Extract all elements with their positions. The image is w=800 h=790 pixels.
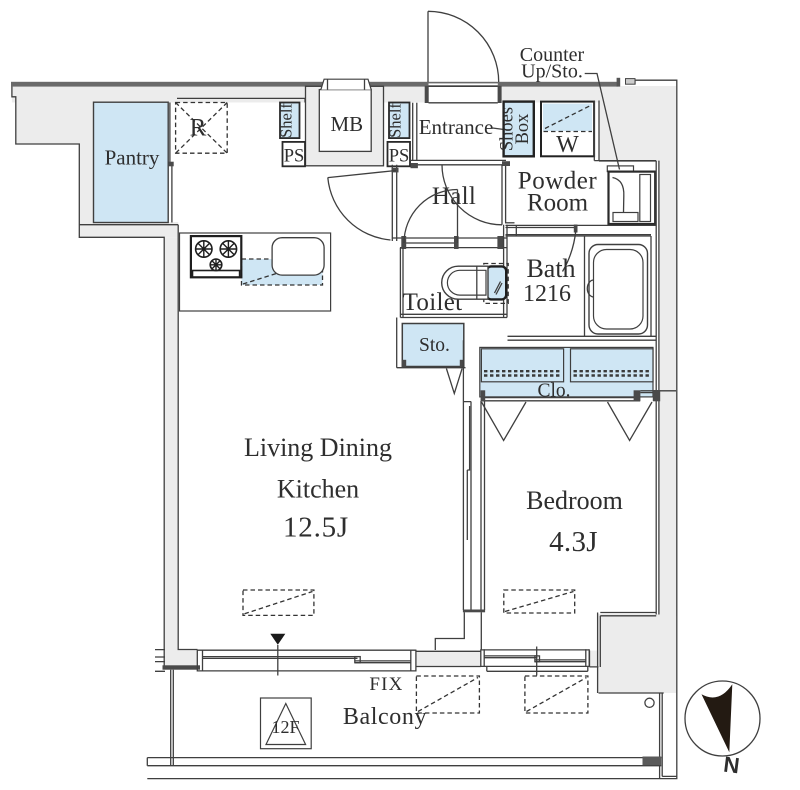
svg-text:12F: 12F bbox=[271, 717, 299, 737]
svg-text:1216: 1216 bbox=[523, 281, 571, 307]
svg-text:W: W bbox=[556, 132, 579, 158]
svg-text:Clo.: Clo. bbox=[537, 381, 570, 402]
svg-text:Shelf: Shelf bbox=[386, 103, 405, 138]
svg-text:Entrance: Entrance bbox=[419, 115, 494, 139]
svg-text:FIX: FIX bbox=[369, 674, 403, 695]
svg-text:PS: PS bbox=[284, 147, 305, 167]
svg-text:Bedroom: Bedroom bbox=[526, 486, 623, 515]
svg-text:R: R bbox=[190, 115, 207, 142]
svg-text:Bath: Bath bbox=[526, 254, 575, 283]
svg-text:Up/Sto.: Up/Sto. bbox=[521, 61, 583, 83]
svg-text:Living Dining: Living Dining bbox=[244, 433, 392, 462]
svg-text:N: N bbox=[722, 752, 741, 779]
svg-text:Box: Box bbox=[513, 113, 533, 145]
svg-text:Pantry: Pantry bbox=[105, 146, 160, 170]
svg-text:Balcony: Balcony bbox=[343, 704, 427, 730]
svg-text:12.5J: 12.5J bbox=[283, 512, 349, 544]
svg-text:MB: MB bbox=[330, 112, 363, 136]
svg-text:Room: Room bbox=[527, 190, 589, 217]
svg-text:Hall: Hall bbox=[432, 183, 476, 210]
svg-text:Sto.: Sto. bbox=[419, 335, 450, 356]
svg-text:Shelf: Shelf bbox=[277, 103, 296, 138]
svg-text:PS: PS bbox=[389, 147, 410, 167]
svg-text:4.3J: 4.3J bbox=[549, 526, 598, 558]
svg-text:Kitchen: Kitchen bbox=[277, 475, 359, 504]
